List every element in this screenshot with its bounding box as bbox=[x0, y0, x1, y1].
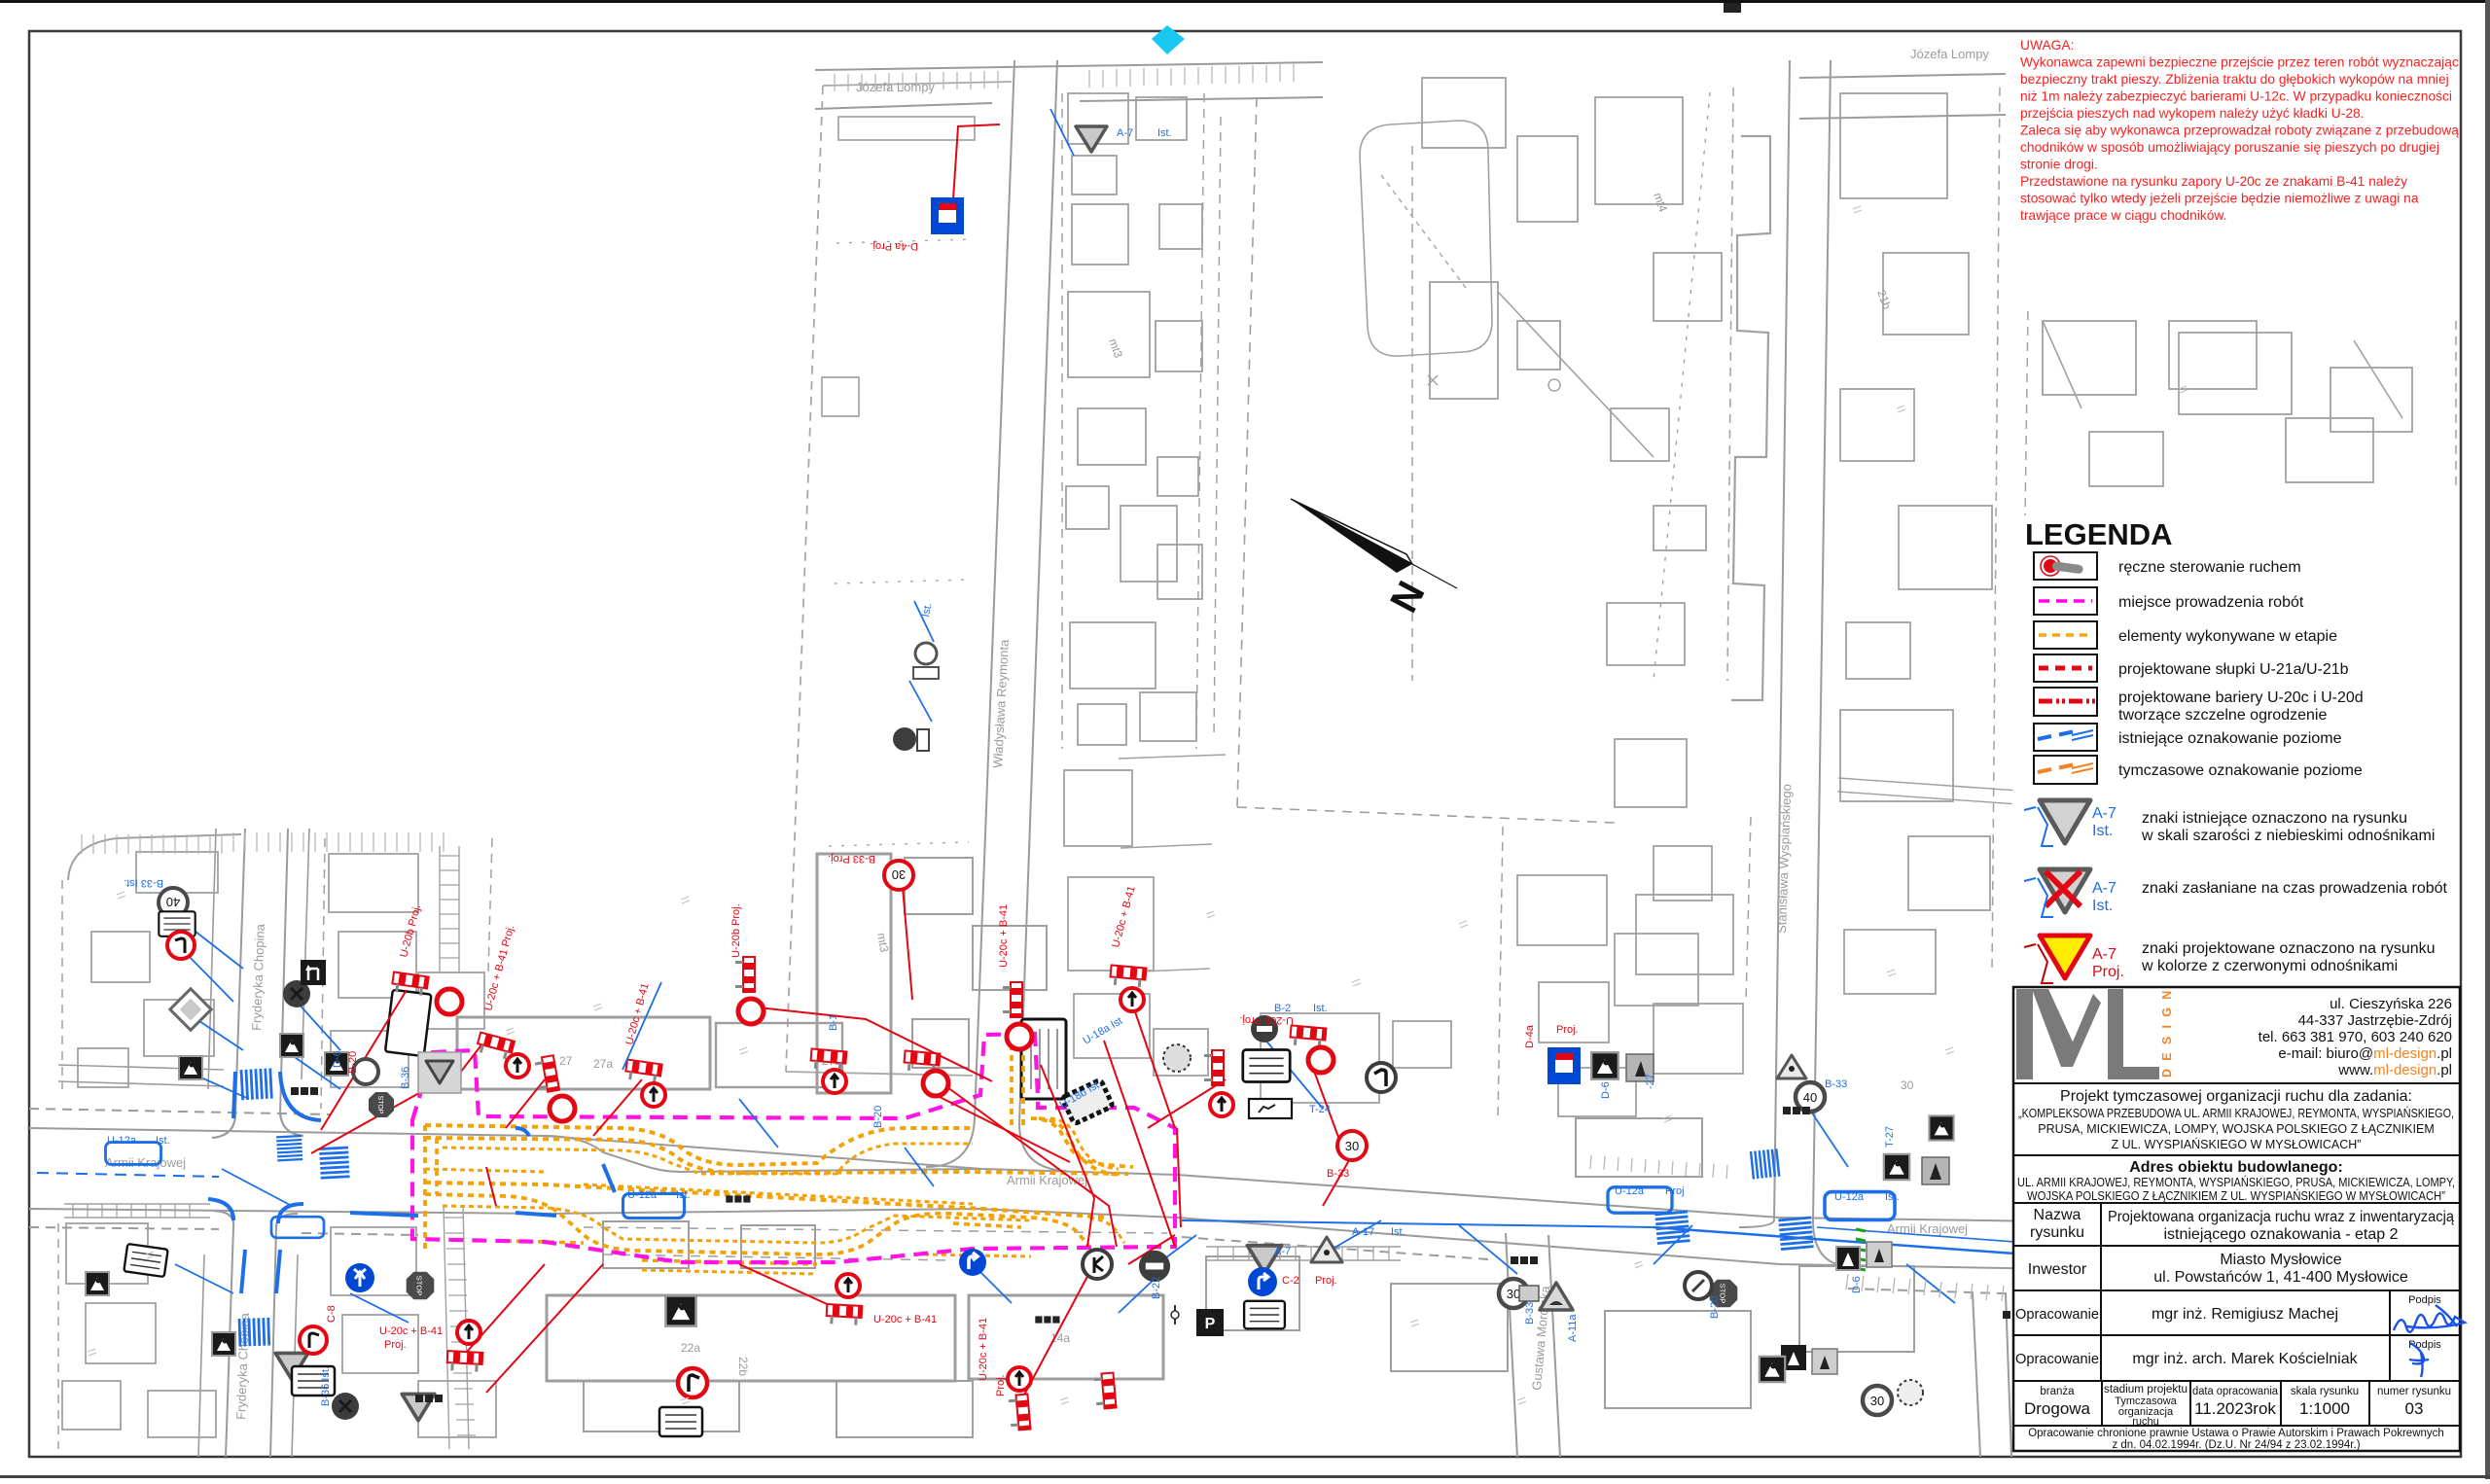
svg-text:z dn. 04.02.1994r. (Dz.U. Nr 2: z dn. 04.02.1994r. (Dz.U. Nr 24/94 z 23.… bbox=[2112, 1439, 2360, 1451]
svg-text:30: 30 bbox=[1901, 1078, 1914, 1092]
svg-text:Projektowana organizacja ruchu: Projektowana organizacja ruchu wraz z in… bbox=[2108, 1209, 2454, 1225]
svg-text:30: 30 bbox=[1870, 1394, 1884, 1408]
svg-text:03: 03 bbox=[2405, 1399, 2424, 1418]
svg-text:znaki istniejące oznaczono na: znaki istniejące oznaczono na rysunku bbox=[2142, 810, 2407, 827]
svg-text:przejścia pieszych nad wykopem: przejścia pieszych nad wykopem należy uż… bbox=[2020, 106, 2365, 121]
svg-text:Opracowanie: Opracowanie bbox=[2015, 1306, 2099, 1323]
svg-text:Przedstawione na rysunku zapor: Przedstawione na rysunku zapory U-20c ze… bbox=[2020, 174, 2407, 189]
svg-text:Ist.: Ist. bbox=[676, 1189, 691, 1201]
svg-text:miejsce prowadzenia robót: miejsce prowadzenia robót bbox=[2118, 594, 2304, 611]
svg-text:Nazwa: Nazwa bbox=[2034, 1207, 2081, 1223]
svg-text:trawjące prace w ciągu chodnik: trawjące prace w ciągu chodników. bbox=[2020, 208, 2226, 223]
svg-text:30: 30 bbox=[1345, 1139, 1359, 1153]
svg-text:ruchu: ruchu bbox=[2132, 1416, 2159, 1428]
svg-text:40: 40 bbox=[166, 895, 180, 909]
svg-text:Ist.: Ist. bbox=[2092, 823, 2113, 839]
svg-text:w kolorze z czerwonymi odnośni: w kolorze z czerwonymi odnośnikami bbox=[2141, 958, 2398, 974]
svg-text:Proj.: Proj. bbox=[384, 1339, 407, 1351]
svg-text:e-mail: biuro@ml-design.pl: e-mail: biuro@ml-design.pl bbox=[2278, 1045, 2452, 1062]
svg-text:LEGENDA: LEGENDA bbox=[2025, 517, 2173, 551]
svg-text:Józefa Lompy: Józefa Lompy bbox=[1910, 47, 1989, 61]
svg-text:Opracowanie: Opracowanie bbox=[2015, 1351, 2099, 1367]
svg-text:Józefa Lompy: Józefa Lompy bbox=[856, 80, 935, 94]
svg-text:projektowane słupki U-21a/U-21: projektowane słupki U-21a/U-21b bbox=[2118, 661, 2349, 678]
svg-text:stosować tylko wtedy jeżeli pr: stosować tylko wtedy jeżeli przejście bę… bbox=[2020, 192, 2419, 206]
svg-text:1:1000: 1:1000 bbox=[2299, 1399, 2350, 1418]
svg-text:numer rysunku: numer rysunku bbox=[2377, 1386, 2451, 1397]
svg-text:D-4a: D-4a bbox=[1524, 1024, 1536, 1048]
svg-text:11.2023rok: 11.2023rok bbox=[2194, 1399, 2276, 1418]
svg-text:stronie drogi.: stronie drogi. bbox=[2020, 158, 2098, 172]
svg-text:Podpis: Podpis bbox=[2408, 1294, 2441, 1306]
svg-text:B-33: B-33 bbox=[1825, 1078, 1847, 1090]
svg-text:ul. Cieszyńska 226: ul. Cieszyńska 226 bbox=[2330, 996, 2452, 1012]
svg-text:44-337 Jastrzębie-Zdrój: 44-337 Jastrzębie-Zdrój bbox=[2298, 1012, 2452, 1029]
svg-text:D-6: D-6 bbox=[1851, 1276, 1863, 1293]
svg-text:Wykonawca zapewni bezpieczne p: Wykonawca zapewni bezpieczne przejście p… bbox=[2020, 55, 2459, 70]
svg-text:27a: 27a bbox=[593, 1057, 613, 1071]
svg-text:B-1: B-1 bbox=[828, 1014, 839, 1031]
svg-text:„KOMPLEKSOWA PRZEBUDOWA UL. AR: „KOMPLEKSOWA PRZEBUDOWA UL. ARMII KRAJOW… bbox=[2018, 1106, 2454, 1120]
svg-text:UWAGA:: UWAGA: bbox=[2020, 38, 2074, 53]
svg-text:Proj.: Proj. bbox=[995, 1374, 1007, 1396]
svg-text:Adres obiektu budowlanego:: Adres obiektu budowlanego: bbox=[2129, 1159, 2343, 1176]
svg-text:B-33 Proj.: B-33 Proj. bbox=[828, 853, 875, 865]
svg-text:U-12a: U-12a bbox=[627, 1189, 658, 1201]
svg-text:tworzące szczelne ogrodzenie: tworzące szczelne ogrodzenie bbox=[2118, 707, 2327, 724]
svg-text:mgr inż. arch. Marek Kościelni: mgr inż. arch. Marek Kościelniak bbox=[2132, 1351, 2358, 1367]
svg-text:Ist.: Ist. bbox=[1157, 127, 1172, 139]
svg-text:B-20: B-20 bbox=[872, 1106, 884, 1128]
svg-text:ul. Powstańców 1, 41-400 Mysło: ul. Powstańców 1, 41-400 Mysłowice bbox=[2153, 1269, 2408, 1286]
svg-text:A-7: A-7 bbox=[2092, 805, 2116, 822]
svg-text:B-33: B-33 bbox=[1327, 1168, 1349, 1180]
svg-text:PRUSA, MICKIEWICZA, LOMPY, WOJ: PRUSA, MICKIEWICZA, LOMPY, WOJSKA POLSKI… bbox=[2038, 1122, 2435, 1136]
svg-text:22a: 22a bbox=[681, 1341, 700, 1355]
svg-text:Ist.: Ist. bbox=[156, 1135, 170, 1147]
svg-text:U-20c + B-41: U-20c + B-41 bbox=[379, 1325, 443, 1337]
svg-text:C-8: C-8 bbox=[326, 1305, 338, 1323]
svg-text:Opracowanie chronione prawnie: Opracowanie chronione prawnie Ustawa o P… bbox=[2028, 1428, 2444, 1439]
svg-text:22b: 22b bbox=[736, 1357, 750, 1376]
svg-text:Ist.: Ist. bbox=[1313, 1003, 1328, 1014]
svg-text:istniejące oznakowanie poziome: istniejące oznakowanie poziome bbox=[2118, 730, 2342, 747]
svg-text:C-2: C-2 bbox=[1282, 1275, 1299, 1287]
svg-text:27: 27 bbox=[559, 1054, 573, 1068]
svg-text:D-6: D-6 bbox=[332, 1050, 343, 1068]
svg-text:U-12a: U-12a bbox=[1615, 1185, 1645, 1197]
svg-text:mgr inż. Remigiusz Machej: mgr inż. Remigiusz Machej bbox=[2152, 1306, 2338, 1323]
svg-text:Miasto Mysłowice: Miasto Mysłowice bbox=[2220, 1252, 2341, 1268]
svg-text:bezpieczny trakt pieszy. Zbliż: bezpieczny trakt pieszy. Zbliżenia trakt… bbox=[2020, 72, 2449, 87]
svg-text:Ist.: Ist. bbox=[2092, 898, 2113, 914]
svg-text:40: 40 bbox=[1803, 1090, 1817, 1105]
svg-text:T-27: T-27 bbox=[1884, 1126, 1896, 1148]
svg-text:D E S I G N: D E S I G N bbox=[2160, 988, 2174, 1078]
svg-text:30: 30 bbox=[892, 867, 906, 882]
svg-text:B-2: B-2 bbox=[1274, 1003, 1291, 1014]
svg-text:U-20c + B-41: U-20c + B-41 bbox=[978, 1318, 989, 1381]
svg-text:Proj.: Proj. bbox=[1556, 1024, 1579, 1036]
svg-text:Projekt tymczasowej organizacj: Projekt tymczasowej organizacji ruchu dl… bbox=[2060, 1088, 2412, 1105]
svg-text:-27: -27 bbox=[1645, 1074, 1656, 1089]
svg-text:A-11a: A-11a bbox=[1567, 1314, 1579, 1342]
svg-text:A-17: A-17 bbox=[1352, 1226, 1374, 1238]
svg-text:ręczne sterowanie ruchem: ręczne sterowanie ruchem bbox=[2118, 559, 2301, 576]
svg-text:www.ml-design.pl: www.ml-design.pl bbox=[2337, 1062, 2452, 1078]
svg-text:istniejącego oznakowania - eta: istniejącego oznakowania - etap 2 bbox=[2163, 1226, 2398, 1243]
svg-text:Ist.: Ist. bbox=[1885, 1191, 1900, 1203]
svg-text:Inwestor: Inwestor bbox=[2028, 1261, 2087, 1278]
svg-text:B-20: B-20 bbox=[1709, 1296, 1721, 1319]
svg-text:skala rysunku: skala rysunku bbox=[2291, 1386, 2359, 1397]
svg-text:Proj.: Proj. bbox=[1315, 1275, 1337, 1287]
svg-text:niż 1m należy zabezpieczyć bar: niż 1m należy zabezpieczyć barierami U-1… bbox=[2020, 89, 2452, 104]
svg-text:D-6: D-6 bbox=[1600, 1081, 1612, 1099]
svg-text:rysunku: rysunku bbox=[2030, 1224, 2084, 1241]
svg-text:A-7: A-7 bbox=[1274, 1246, 1291, 1257]
svg-text:tel. 663 381 970, 603 240 620: tel. 663 381 970, 603 240 620 bbox=[2259, 1029, 2452, 1045]
svg-text:Zaleca się aby wykonawca przep: Zaleca się aby wykonawca przeprowadzał r… bbox=[2020, 124, 2459, 138]
svg-text:A-7: A-7 bbox=[1117, 127, 1133, 139]
svg-text:projektowane bariery U-20c i U: projektowane bariery U-20c i U-20d bbox=[2118, 689, 2364, 706]
svg-text:B-33: B-33 bbox=[1524, 1302, 1536, 1325]
svg-text:chodników w sposób umożliwiają: chodników w sposób umożliwiający porusza… bbox=[2020, 140, 2439, 155]
svg-text:Drogowa: Drogowa bbox=[2024, 1399, 2091, 1418]
svg-text:data opracowania: data opracowania bbox=[2192, 1386, 2279, 1397]
svg-text:Z UL. WYSPIAŃSKIEGO W MYSŁOWIC: Z UL. WYSPIAŃSKIEGO W MYSŁOWICACH” bbox=[2112, 1137, 2362, 1151]
svg-text:UL. ARMII KRAJOWEJ, REYMONTA,: UL. ARMII KRAJOWEJ, REYMONTA, WYSPIAŃSKI… bbox=[2017, 1175, 2455, 1189]
svg-text:w skali szarości z niebieskimi: w skali szarości z niebieskimi odnośnika… bbox=[2141, 828, 2435, 844]
svg-text:U-12a: U-12a bbox=[1834, 1191, 1865, 1203]
svg-text:Proj.: Proj. bbox=[2092, 964, 2124, 980]
svg-text:znaki zasłaniane na czas prowa: znaki zasłaniane na czas prowadzenia rob… bbox=[2142, 880, 2448, 897]
svg-text:WOJSKA POLSKIEGO Z ŁĄCZNIKIEM: WOJSKA POLSKIEGO Z ŁĄCZNIKIEM Z UL. WYSP… bbox=[2027, 1188, 2445, 1203]
svg-text:elementy wykonywane w etapie: elementy wykonywane w etapie bbox=[2118, 628, 2337, 645]
svg-text:branża: branża bbox=[2040, 1386, 2075, 1397]
svg-text:U-20c + B-41: U-20c + B-41 bbox=[998, 904, 1010, 968]
svg-text:Proj: Proj bbox=[1665, 1185, 1685, 1197]
svg-text:U-20b Proj.: U-20b Proj. bbox=[1239, 1014, 1294, 1026]
svg-text:30: 30 bbox=[1507, 1287, 1520, 1301]
svg-text:U-20b Proj.: U-20b Proj. bbox=[730, 903, 742, 958]
svg-text:D-4a Proj.: D-4a Proj. bbox=[870, 240, 918, 252]
svg-text:P: P bbox=[1205, 1316, 1216, 1332]
svg-text:B-36: B-36 bbox=[400, 1067, 411, 1089]
svg-text:B-33 Ist.: B-33 Ist. bbox=[124, 877, 163, 889]
svg-text:tymczasowe oznakowanie poziome: tymczasowe oznakowanie poziome bbox=[2118, 762, 2363, 779]
svg-text:U-20c + B-41: U-20c + B-41 bbox=[873, 1314, 937, 1325]
svg-text:B-22: B-22 bbox=[1151, 1277, 1162, 1299]
svg-text:Ist.: Ist. bbox=[1391, 1226, 1405, 1238]
svg-text:Armii Krajowej: Armii Krajowej bbox=[105, 1155, 186, 1170]
svg-text:A-7: A-7 bbox=[2092, 880, 2116, 897]
svg-text:B-20: B-20 bbox=[347, 1051, 359, 1074]
svg-text:stadium projektu: stadium projektu bbox=[2104, 1384, 2188, 1396]
svg-text:T-24: T-24 bbox=[1309, 1104, 1331, 1115]
svg-text:znaki projektowane oznaczono n: znaki projektowane oznaczono na rysunku bbox=[2142, 940, 2436, 957]
svg-text:U-12a: U-12a bbox=[107, 1135, 137, 1147]
svg-text:B-36 Ist.: B-36 Ist. bbox=[320, 1366, 332, 1406]
svg-text:Ist.: Ist. bbox=[920, 602, 934, 618]
svg-text:A-7: A-7 bbox=[2092, 946, 2116, 963]
